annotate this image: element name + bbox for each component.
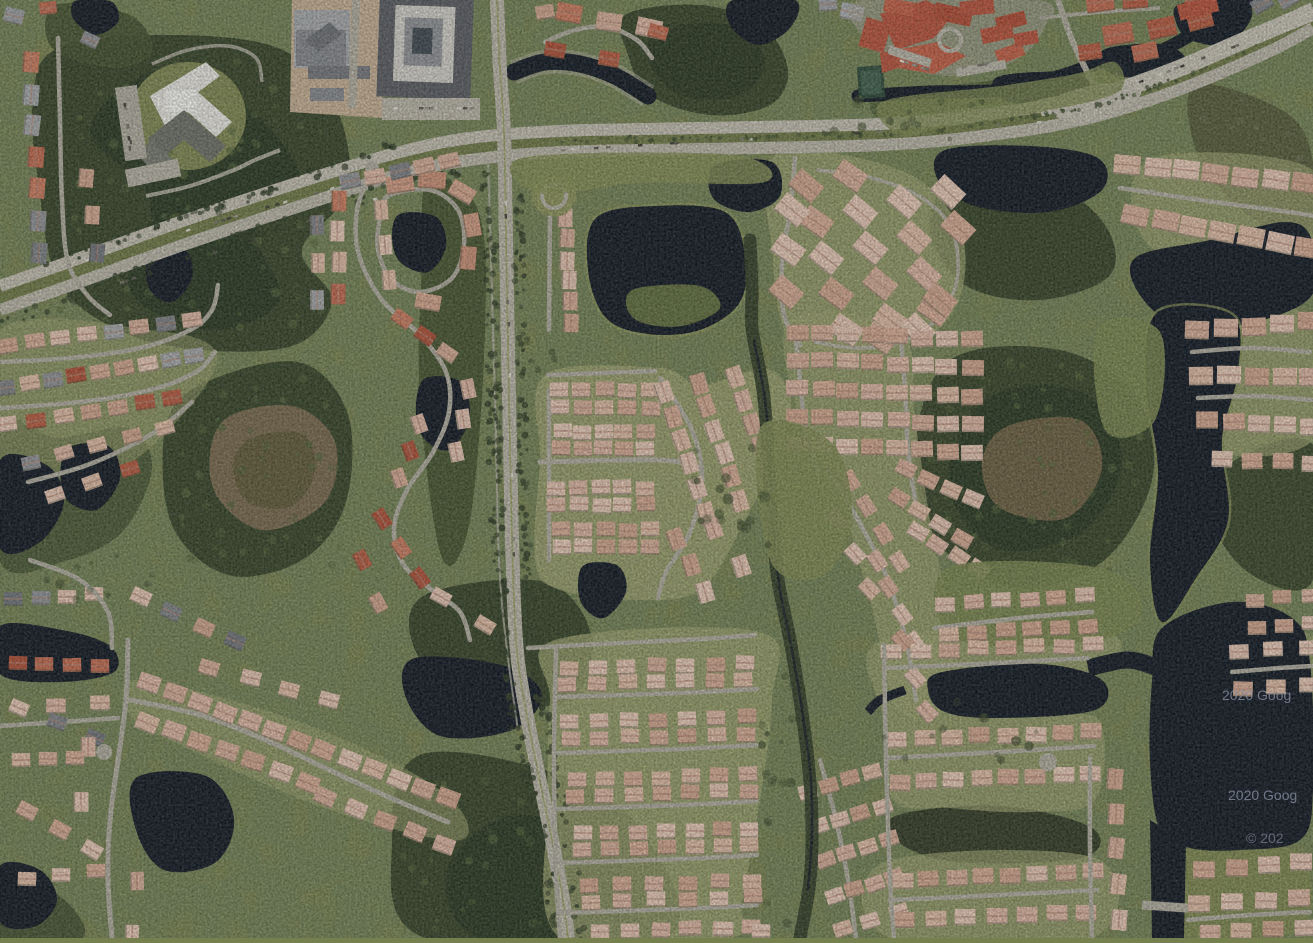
svg-text:2020 Goog: 2020 Goog [1222, 687, 1291, 703]
svg-text:© 202: © 202 [1246, 830, 1284, 846]
svg-text:2020 Goog: 2020 Goog [1228, 787, 1297, 803]
